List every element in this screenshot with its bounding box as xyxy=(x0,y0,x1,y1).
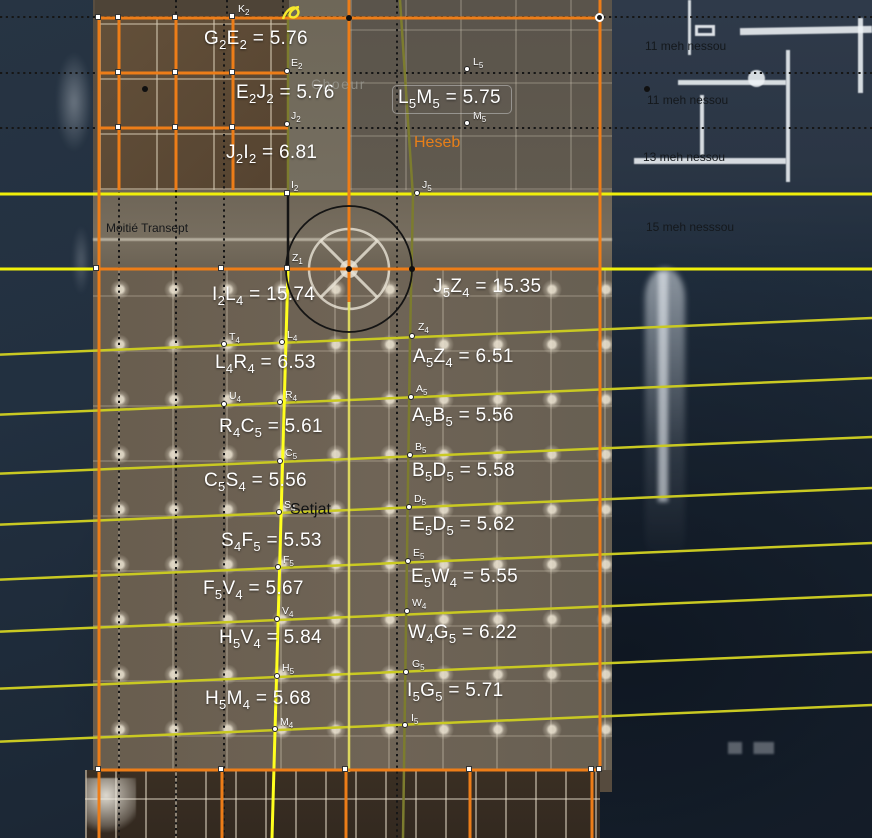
point-T4[interactable] xyxy=(221,341,227,347)
grid-point[interactable] xyxy=(596,766,602,772)
grid-point[interactable] xyxy=(93,265,99,271)
grid-point[interactable] xyxy=(218,766,224,772)
measurement-A5Z4[interactable]: A5Z4 = 6.51 xyxy=(413,346,514,368)
grid-point[interactable] xyxy=(466,766,472,772)
point-K2[interactable] xyxy=(229,13,235,19)
setjat-label[interactable]: Setjat xyxy=(290,501,331,519)
measurement-B5D5[interactable]: B5D5 = 5.58 xyxy=(412,460,515,482)
point-label-E2: E2 xyxy=(291,57,302,69)
grid-point[interactable] xyxy=(95,14,101,20)
point-label-F5: F5 xyxy=(283,554,294,566)
measurement-R4C5[interactable]: R4C5 = 5.61 xyxy=(219,416,323,438)
point-label-K2: K2 xyxy=(238,3,249,15)
choeur-label[interactable]: Choeur xyxy=(311,76,366,92)
measurement-H5M4[interactable]: H5M4 = 5.68 xyxy=(205,688,311,710)
measurement-A5B5[interactable]: A5B5 = 5.56 xyxy=(412,405,514,427)
point-label-W4: W4 xyxy=(412,597,426,609)
construction-dot[interactable] xyxy=(644,86,650,92)
point-F5[interactable] xyxy=(275,564,281,570)
measurement-L4R4[interactable]: L4R4 = 6.53 xyxy=(215,352,316,374)
point-label-J2: J2 xyxy=(291,110,301,122)
construction-dot[interactable] xyxy=(409,266,415,272)
point-V4[interactable] xyxy=(274,616,280,622)
point-A5[interactable] xyxy=(408,394,414,400)
grid-point[interactable] xyxy=(218,265,224,271)
grid-point[interactable] xyxy=(588,766,594,772)
grid-point[interactable] xyxy=(172,69,178,75)
point-label-V4: V4 xyxy=(282,605,293,617)
point-label-L4: L4 xyxy=(287,329,297,341)
point-label-U4: U4 xyxy=(229,390,241,402)
construction-dot[interactable] xyxy=(346,15,352,21)
point-E5[interactable] xyxy=(405,558,411,564)
point-label-A5: A5 xyxy=(416,383,427,395)
point-label-M4: M4 xyxy=(280,716,293,728)
measurement-J2I2[interactable]: J2I2 = 6.81 xyxy=(226,142,317,164)
measurement-S4F5[interactable]: S4F5 = 5.53 xyxy=(221,530,322,552)
construction-dot[interactable] xyxy=(142,86,148,92)
grid-point[interactable] xyxy=(229,124,235,130)
meh-nessou-1[interactable]: 11 meh nessou xyxy=(645,39,726,53)
grid-point[interactable] xyxy=(342,766,348,772)
point-label-E5: E5 xyxy=(413,547,424,559)
point-label-Z1: Z1 xyxy=(292,252,303,264)
grid-point[interactable] xyxy=(115,124,121,130)
point-label-R4: R4 xyxy=(285,389,297,401)
grid-point[interactable] xyxy=(115,14,121,20)
grid-point[interactable] xyxy=(172,124,178,130)
grid-point[interactable] xyxy=(229,69,235,75)
geogebra-canvas[interactable]: K2E2J2I2L5M5J5Z1T4L4Z4U4R4A5C5B5S4D5F5E5… xyxy=(0,0,872,838)
meh-nessou-4[interactable]: 15 meh nesssou xyxy=(646,220,734,234)
point-Z4[interactable] xyxy=(409,333,415,339)
construction-dot[interactable] xyxy=(346,266,352,272)
grid-point[interactable] xyxy=(115,69,121,75)
point-J2[interactable] xyxy=(284,121,290,127)
measurement-I2L4[interactable]: I2L4 = 15.74 xyxy=(212,284,315,306)
point-R4[interactable] xyxy=(277,399,283,405)
measurement-G2E2[interactable]: G2E2 = 5.76 xyxy=(204,28,308,50)
point-L4[interactable] xyxy=(279,339,285,345)
point-C5[interactable] xyxy=(277,458,283,464)
point-L5[interactable] xyxy=(464,66,470,72)
point-B5[interactable] xyxy=(407,452,413,458)
point-label-L5: L5 xyxy=(473,56,483,68)
heseb-label[interactable]: Heseb xyxy=(414,134,460,152)
point-S4[interactable] xyxy=(276,509,282,515)
measurement-C5S4[interactable]: C5S4 = 5.56 xyxy=(204,470,307,492)
point-label-I2: I2 xyxy=(291,179,298,191)
point-E2[interactable] xyxy=(284,68,290,74)
point-I2[interactable] xyxy=(284,190,290,196)
measurement-F5V4[interactable]: F5V4 = 5.67 xyxy=(203,578,304,600)
point-label-G5: G5 xyxy=(412,658,425,670)
point-label-H5: H5 xyxy=(282,662,294,674)
point-label-B5: B5 xyxy=(415,441,426,453)
point-G5[interactable] xyxy=(403,669,409,675)
measurement-E5D5[interactable]: E5D5 = 5.62 xyxy=(412,514,515,536)
measurement-L5M5[interactable]: L5M5 = 5.75 xyxy=(392,85,512,114)
measurement-W4G5[interactable]: W4G5 = 6.22 xyxy=(408,622,517,644)
ring-point[interactable] xyxy=(595,13,604,22)
meh-nessou-3[interactable]: 13 meh nessou xyxy=(643,150,725,164)
point-U4[interactable] xyxy=(221,401,227,407)
point-label-J5: J5 xyxy=(422,179,432,191)
point-H5[interactable] xyxy=(274,673,280,679)
point-label-Z4: Z4 xyxy=(418,321,429,333)
point-label-I5: I5 xyxy=(411,712,418,724)
point-I5[interactable] xyxy=(402,722,408,728)
point-label-T4: T4 xyxy=(229,331,240,343)
measurement-J5Z4[interactable]: J5Z4 = 15.35 xyxy=(433,276,541,298)
measurement-E5W4[interactable]: E5W4 = 5.55 xyxy=(411,566,518,588)
point-W4[interactable] xyxy=(404,608,410,614)
point-M4[interactable] xyxy=(272,726,278,732)
point-D5[interactable] xyxy=(406,504,412,510)
meh-nessou-2[interactable]: 11 meh nessou xyxy=(647,93,728,107)
point-Z1[interactable] xyxy=(284,265,290,271)
point-J5[interactable] xyxy=(414,190,420,196)
grid-point[interactable] xyxy=(172,14,178,20)
bay-axis-line[interactable] xyxy=(0,705,872,742)
point-label-C5: C5 xyxy=(285,447,297,459)
measurement-I5G5[interactable]: I5G5 = 5.71 xyxy=(407,680,503,702)
point-label-D5: D5 xyxy=(414,493,426,505)
measurement-H5V4[interactable]: H5V4 = 5.84 xyxy=(219,627,322,649)
point-M5[interactable] xyxy=(464,120,470,126)
moitie-transept-label[interactable]: Moitié Transept xyxy=(106,221,188,235)
grid-point[interactable] xyxy=(95,766,101,772)
